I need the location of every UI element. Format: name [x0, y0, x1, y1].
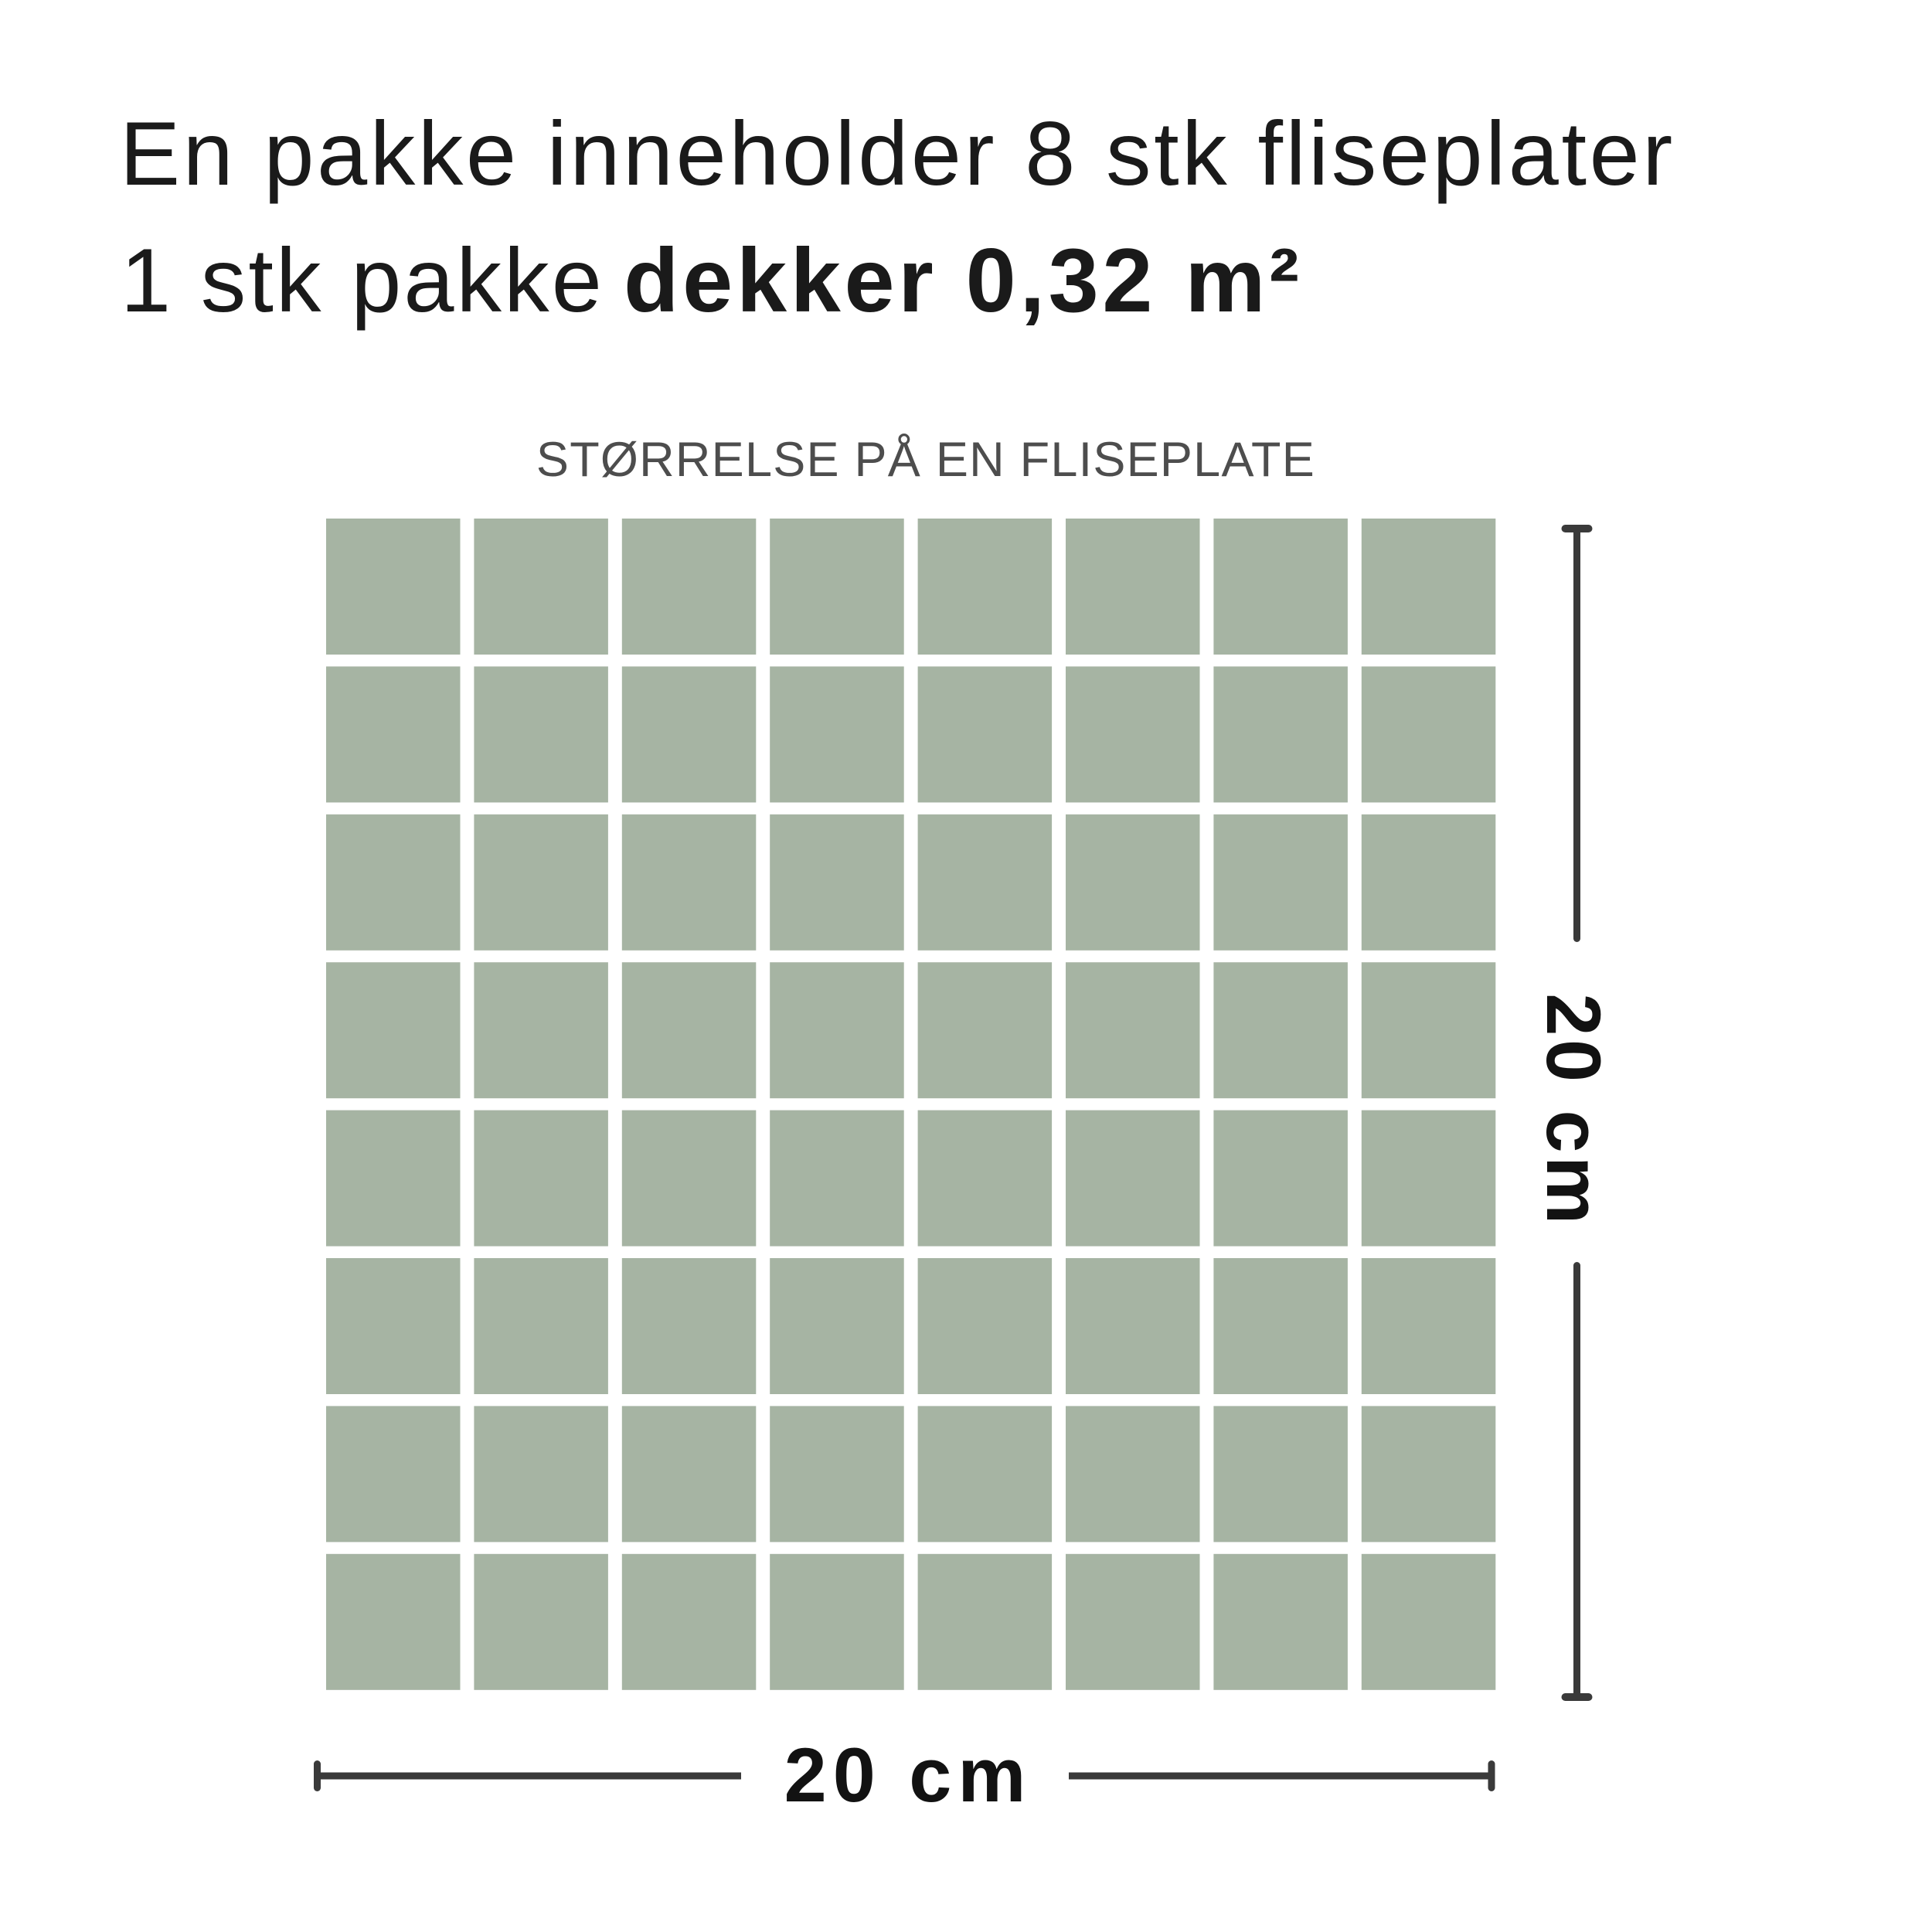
svg-text:STØRRELSE PÅ EN FLISEPLATE: STØRRELSE PÅ EN FLISEPLATE	[536, 433, 1315, 487]
svg-text:1 stk pakkedekker 0,32 m²: 1 stk pakkedekker 0,32 m²	[121, 230, 1303, 331]
svg-text:20 cm: 20 cm	[784, 1732, 1032, 1818]
svg-text:En pakke inneholder 8 stk flis: En pakke inneholder 8 stk fliseplater	[120, 103, 1675, 204]
svg-text:20 cm: 20 cm	[1531, 993, 1617, 1227]
